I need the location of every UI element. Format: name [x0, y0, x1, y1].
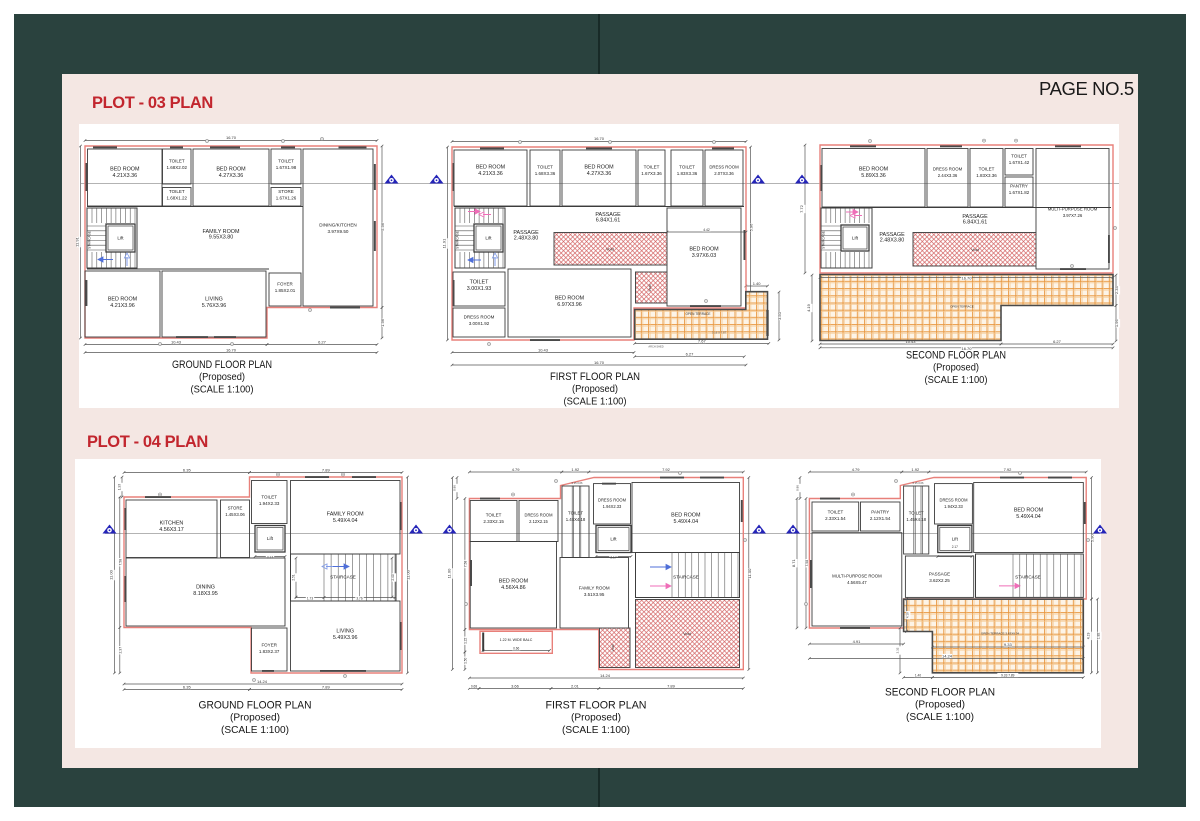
svg-text:(SCALE 1:100): (SCALE 1:100) — [191, 384, 254, 395]
svg-text:(Proposed): (Proposed) — [199, 372, 245, 383]
svg-text:FAMILY ROOM: FAMILY ROOM — [327, 512, 364, 518]
svg-text:1.40: 1.40 — [753, 281, 762, 286]
svg-text:MULTI-PURPOSE ROOM: MULTI-PURPOSE ROOM — [1048, 207, 1098, 212]
svg-text:PANTRY: PANTRY — [871, 510, 889, 515]
svg-text:6.97X3.96: 6.97X3.96 — [557, 302, 582, 308]
svg-text:BED ROOM: BED ROOM — [859, 167, 889, 173]
svg-text:4.21X3.36: 4.21X3.36 — [113, 173, 138, 179]
svg-text:Void: Void — [611, 645, 615, 652]
svg-text:DRESS ROOM: DRESS ROOM — [933, 167, 963, 172]
svg-text:1.68X2.02: 1.68X2.02 — [167, 165, 188, 170]
svg-text:(Proposed): (Proposed) — [933, 363, 979, 374]
svg-text:10.43: 10.43 — [171, 339, 182, 344]
svg-text:BED ROOM: BED ROOM — [584, 165, 614, 171]
svg-text:STAIRCASE: STAIRCASE — [1015, 575, 1041, 580]
svg-text:1.82: 1.82 — [1097, 632, 1101, 639]
svg-text:3.51X3.95: 3.51X3.95 — [584, 592, 605, 597]
svg-text:1.67X1.98: 1.67X1.98 — [276, 165, 297, 170]
svg-text:4.19: 4.19 — [1087, 632, 1091, 639]
svg-text:2.01: 2.01 — [571, 683, 580, 688]
svg-text:4.79: 4.79 — [512, 467, 521, 472]
svg-text:DRESS ROOM: DRESS ROOM — [525, 513, 554, 518]
svg-text:2.17: 2.17 — [952, 545, 958, 549]
svg-text:(SCALE 1:100): (SCALE 1:100) — [562, 725, 630, 736]
svg-text:OPEN TERRACE: OPEN TERRACE — [950, 305, 974, 309]
svg-text:1.85X2.01: 1.85X2.01 — [275, 288, 296, 293]
svg-text:3.50: 3.50 — [777, 311, 782, 320]
svg-text:(Proposed): (Proposed) — [915, 700, 965, 711]
svg-text:1.92: 1.92 — [911, 467, 920, 472]
svg-text:SECOND FLOOR PLAN: SECOND FLOOR PLAN — [906, 350, 1006, 362]
svg-text:3.97X6.03: 3.97X6.03 — [692, 253, 717, 259]
svg-text:14.24: 14.24 — [942, 653, 953, 658]
svg-text:0.15 0.66: 0.15 0.66 — [913, 481, 924, 485]
svg-text:0.86: 0.86 — [452, 485, 456, 491]
svg-text:1.67X3.36: 1.67X3.36 — [641, 171, 662, 176]
svg-text:TOILET: TOILET — [909, 511, 924, 516]
svg-text:16.70: 16.70 — [226, 347, 237, 352]
svg-text:DRESS ROOM: DRESS ROOM — [940, 498, 969, 503]
svg-text:Void: Void — [683, 631, 691, 636]
svg-text:3.76: 3.76 — [356, 597, 362, 601]
svg-text:0.66: 0.66 — [513, 646, 519, 650]
svg-text:1.83X2.37: 1.83X2.37 — [259, 649, 280, 654]
svg-text:PASSAGE: PASSAGE — [929, 572, 950, 577]
svg-text:1.96: 1.96 — [380, 318, 385, 327]
svg-text:TOILET: TOILET — [537, 165, 553, 170]
svg-text:LIVING: LIVING — [205, 297, 223, 303]
svg-text:3.66: 3.66 — [511, 683, 520, 688]
svg-text:7.92: 7.92 — [662, 467, 671, 472]
svg-text:9.33 7.89: 9.33 7.89 — [1001, 673, 1015, 677]
svg-text:OPEN TERRACE: OPEN TERRACE — [685, 312, 710, 316]
svg-text:1.45X4.18: 1.45X4.18 — [566, 517, 586, 522]
svg-text:4.27X3.36: 4.27X3.36 — [587, 171, 612, 177]
svg-text:6.35: 6.35 — [183, 467, 192, 472]
svg-text:1.94X2.33: 1.94X2.33 — [259, 501, 280, 506]
svg-text:2.32: 2.32 — [895, 647, 899, 653]
svg-text:BED ROOM: BED ROOM — [1014, 508, 1044, 514]
svg-text:1.67X1.82: 1.67X1.82 — [1009, 190, 1030, 195]
svg-text:11.00: 11.00 — [406, 569, 411, 579]
svg-text:STAIRCASE: STAIRCASE — [456, 231, 460, 249]
svg-text:3.97X9.50: 3.97X9.50 — [328, 229, 349, 234]
svg-text:1.94X2.33: 1.94X2.33 — [603, 504, 622, 509]
svg-text:TOILET: TOILET — [828, 510, 844, 515]
svg-text:14.24: 14.24 — [600, 673, 611, 678]
svg-text:5.89X3.36: 5.89X3.36 — [861, 173, 886, 179]
svg-text:TOILET: TOILET — [278, 159, 294, 164]
svg-text:Lift: Lift — [117, 236, 124, 241]
svg-text:STORE: STORE — [278, 189, 293, 194]
svg-text:TOILET: TOILET — [679, 165, 695, 170]
svg-text:(SCALE 1:100): (SCALE 1:100) — [221, 725, 289, 736]
svg-text:DINING: DINING — [196, 585, 215, 591]
svg-text:GROUND FLOOR PLAN: GROUND FLOOR PLAN — [172, 359, 272, 371]
svg-text:2.33X1.54: 2.33X1.54 — [825, 516, 846, 521]
svg-text:1.67X1.26: 1.67X1.26 — [276, 195, 297, 200]
svg-text:BED ROOM: BED ROOM — [671, 513, 701, 519]
svg-text:2.37: 2.37 — [119, 647, 123, 654]
svg-text:10.43: 10.43 — [538, 347, 549, 352]
svg-text:4.79: 4.79 — [852, 467, 861, 472]
svg-text:BED ROOM: BED ROOM — [499, 579, 529, 585]
svg-text:3.97X7.26: 3.97X7.26 — [1063, 213, 1083, 218]
svg-text:14.24: 14.24 — [257, 679, 268, 684]
svg-text:2.12X2.15: 2.12X2.15 — [529, 519, 548, 524]
svg-text:4.19: 4.19 — [905, 612, 909, 618]
svg-text:(Proposed): (Proposed) — [571, 713, 621, 724]
svg-text:Void: Void — [971, 247, 979, 252]
svg-text:4.91: 4.91 — [853, 639, 862, 644]
svg-text:5.49X4.04: 5.49X4.04 — [1016, 514, 1041, 520]
svg-text:5.96: 5.96 — [380, 222, 385, 231]
svg-text:0.15 0.66: 0.15 0.66 — [572, 481, 583, 485]
svg-text:PANTRY: PANTRY — [1010, 184, 1028, 189]
svg-text:Lift: Lift — [610, 537, 617, 542]
svg-text:1.22: 1.22 — [464, 637, 468, 643]
svg-text:16.70: 16.70 — [594, 136, 605, 141]
svg-text:(SCALE 1:100): (SCALE 1:100) — [906, 712, 974, 723]
svg-text:1.50: 1.50 — [464, 657, 468, 663]
svg-text:LIVING: LIVING — [336, 629, 354, 635]
svg-text:1.45X3.06: 1.45X3.06 — [225, 512, 245, 517]
svg-text:11.91: 11.91 — [75, 236, 80, 246]
svg-text:2.40: 2.40 — [391, 574, 395, 580]
svg-text:4.19: 4.19 — [806, 303, 811, 312]
svg-text:STAIRCASE: STAIRCASE — [822, 231, 826, 249]
svg-text:6.27: 6.27 — [686, 352, 695, 357]
svg-text:STORE: STORE — [228, 506, 243, 511]
svg-text:(Proposed): (Proposed) — [230, 713, 280, 724]
svg-text:2.07X3.36: 2.07X3.36 — [714, 171, 734, 176]
svg-text:SECOND FLOOR PLAN: SECOND FLOOR PLAN — [885, 687, 995, 699]
svg-text:7.72: 7.72 — [799, 204, 804, 213]
svg-text:4.21X3.36: 4.21X3.36 — [478, 171, 503, 177]
svg-text:2.48X3.80: 2.48X3.80 — [514, 235, 539, 241]
svg-text:2.48X3.80: 2.48X3.80 — [880, 237, 905, 243]
svg-text:TOILET: TOILET — [169, 189, 185, 194]
svg-text:1.67X1.42: 1.67X1.42 — [1009, 160, 1030, 165]
svg-text:4.56X5.47: 4.56X5.47 — [847, 580, 867, 585]
svg-text:DRESS ROOM: DRESS ROOM — [598, 498, 627, 503]
svg-text:Lift: Lift — [267, 536, 274, 541]
svg-text:DRESS ROOM: DRESS ROOM — [709, 165, 739, 170]
svg-text:Void: Void — [648, 285, 652, 292]
svg-text:11.00: 11.00 — [447, 568, 452, 578]
svg-text:STAIRCASE: STAIRCASE — [88, 231, 92, 249]
svg-text:(SCALE 1:100): (SCALE 1:100) — [564, 396, 627, 407]
svg-text:(Proposed): (Proposed) — [572, 384, 618, 395]
svg-text:7.58: 7.58 — [464, 561, 468, 568]
svg-text:16.70: 16.70 — [961, 276, 972, 281]
svg-text:1.93: 1.93 — [117, 484, 121, 490]
svg-text:6.27: 6.27 — [318, 339, 327, 344]
svg-text:TOILET: TOILET — [979, 167, 995, 172]
svg-text:TOILET: TOILET — [470, 280, 489, 286]
svg-text:STAIRCASE: STAIRCASE — [673, 575, 699, 580]
svg-text:7.89: 7.89 — [322, 684, 331, 689]
svg-text:11.91: 11.91 — [442, 238, 447, 248]
svg-text:1.83X3.36: 1.83X3.36 — [677, 171, 698, 176]
svg-text:2.17: 2.17 — [267, 556, 273, 560]
svg-text:7.89: 7.89 — [322, 467, 331, 472]
svg-text:TOILET: TOILET — [644, 165, 660, 170]
svg-text:7.92: 7.92 — [1004, 467, 1013, 472]
svg-text:3.00X1.93: 3.00X1.93 — [467, 286, 492, 292]
svg-text:4.21X3.96: 4.21X3.96 — [110, 303, 135, 309]
svg-text:6.84X1.61: 6.84X1.61 — [596, 217, 621, 223]
svg-text:FAMILY ROOM: FAMILY ROOM — [579, 586, 610, 591]
svg-text:BED ROOM: BED ROOM — [110, 167, 140, 173]
svg-text:0.68: 0.68 — [471, 684, 477, 688]
svg-text:DRESS ROOM: DRESS ROOM — [464, 315, 495, 320]
svg-text:Lift: Lift — [952, 537, 959, 542]
svg-text:3.00X1.92: 3.00X1.92 — [469, 321, 490, 326]
svg-text:4.27X3.36: 4.27X3.36 — [219, 173, 244, 179]
svg-text:ARCH SHED: ARCH SHED — [648, 345, 663, 349]
svg-text:TOILET: TOILET — [261, 495, 277, 500]
svg-text:BED ROOM: BED ROOM — [216, 167, 246, 173]
svg-text:2.51: 2.51 — [292, 574, 296, 580]
svg-text:2.44X3.36: 2.44X3.36 — [938, 173, 958, 178]
svg-text:1.68X3.36: 1.68X3.36 — [535, 171, 556, 176]
svg-text:5.49X4.04: 5.49X4.04 — [674, 519, 699, 525]
svg-text:1.22 M. WIDE BALC: 1.22 M. WIDE BALC — [500, 638, 533, 642]
svg-text:KITCHEN: KITCHEN — [160, 521, 184, 527]
svg-text:2.34: 2.34 — [1114, 286, 1119, 295]
svg-text:2.33X2.15: 2.33X2.15 — [483, 519, 504, 524]
svg-text:7.89: 7.89 — [667, 683, 676, 688]
svg-text:BED ROOM: BED ROOM — [476, 165, 506, 171]
svg-text:6.27: 6.27 — [1053, 339, 1062, 344]
svg-text:16.70: 16.70 — [226, 135, 237, 140]
svg-text:5.96: 5.96 — [749, 223, 754, 232]
svg-text:TOILET: TOILET — [169, 159, 185, 164]
svg-text:11.00: 11.00 — [109, 569, 114, 579]
svg-text:6.35: 6.35 — [183, 684, 192, 689]
svg-text:4.56X4.86: 4.56X4.86 — [501, 585, 526, 591]
svg-text:1.83X3.36: 1.83X3.36 — [976, 173, 997, 178]
svg-text:1.73: 1.73 — [307, 597, 313, 601]
svg-text:1.45X4.18: 1.45X4.18 — [906, 517, 926, 522]
svg-text:11.00: 11.00 — [747, 568, 752, 578]
svg-text:9.55X3.80: 9.55X3.80 — [209, 234, 234, 240]
svg-text:7.58: 7.58 — [805, 560, 809, 567]
svg-text:5.49X4.04: 5.49X4.04 — [333, 518, 358, 524]
svg-text:8.18X3.95: 8.18X3.95 — [193, 591, 218, 597]
svg-text:4.42: 4.42 — [703, 228, 710, 232]
svg-text:FIRST FLOOR PLAN: FIRST FLOOR PLAN — [550, 371, 640, 383]
svg-text:3.16 X 7.87: 3.16 X 7.87 — [712, 331, 727, 335]
svg-text:1.94X2.33: 1.94X2.33 — [944, 504, 963, 509]
svg-text:FOYER: FOYER — [277, 282, 293, 287]
svg-text:7.58: 7.58 — [119, 559, 123, 566]
svg-text:5.90: 5.90 — [1090, 534, 1095, 543]
svg-text:16.70: 16.70 — [594, 360, 605, 365]
svg-text:STAIRCASE: STAIRCASE — [330, 575, 356, 580]
svg-text:BED ROOM: BED ROOM — [108, 297, 138, 303]
svg-text:6.84X1.61: 6.84X1.61 — [963, 219, 988, 225]
svg-text:FOYER: FOYER — [261, 643, 277, 648]
svg-text:2.12X1.54: 2.12X1.54 — [870, 516, 891, 521]
svg-text:5.49X3.96: 5.49X3.96 — [333, 635, 358, 641]
svg-text:5.76X3.96: 5.76X3.96 — [202, 303, 227, 309]
svg-text:3.62X2.25: 3.62X2.25 — [929, 578, 950, 583]
svg-text:1.96: 1.96 — [1114, 319, 1119, 328]
svg-text:(SCALE 1:100): (SCALE 1:100) — [925, 375, 988, 386]
svg-text:1.40: 1.40 — [915, 673, 921, 677]
svg-text:MULTI-PURPOSE ROOM: MULTI-PURPOSE ROOM — [832, 574, 882, 579]
svg-text:GROUND FLOOR PLAN: GROUND FLOOR PLAN — [199, 700, 312, 712]
svg-text:DINING/KITCHEN: DINING/KITCHEN — [319, 223, 357, 228]
svg-text:OPEN TERRACE 3.63X9.34: OPEN TERRACE 3.63X9.34 — [981, 632, 1019, 636]
svg-text:BED ROOM: BED ROOM — [689, 247, 719, 253]
svg-text:Void: Void — [606, 247, 614, 252]
svg-text:1.92: 1.92 — [571, 467, 580, 472]
svg-text:8.71: 8.71 — [791, 559, 796, 568]
svg-text:9.33: 9.33 — [1004, 642, 1013, 647]
svg-text:Lift: Lift — [852, 236, 859, 241]
svg-text:1.68X1.22: 1.68X1.22 — [167, 195, 188, 200]
svg-text:TOILET: TOILET — [1011, 154, 1027, 159]
svg-text:TOILET: TOILET — [486, 513, 502, 518]
svg-text:0.86: 0.86 — [795, 485, 799, 491]
svg-text:BED ROOM: BED ROOM — [555, 296, 585, 302]
svg-text:FIRST FLOOR PLAN: FIRST FLOOR PLAN — [546, 700, 647, 712]
svg-text:Lift: Lift — [485, 236, 492, 241]
svg-text:4.56X3.17: 4.56X3.17 — [159, 527, 184, 533]
